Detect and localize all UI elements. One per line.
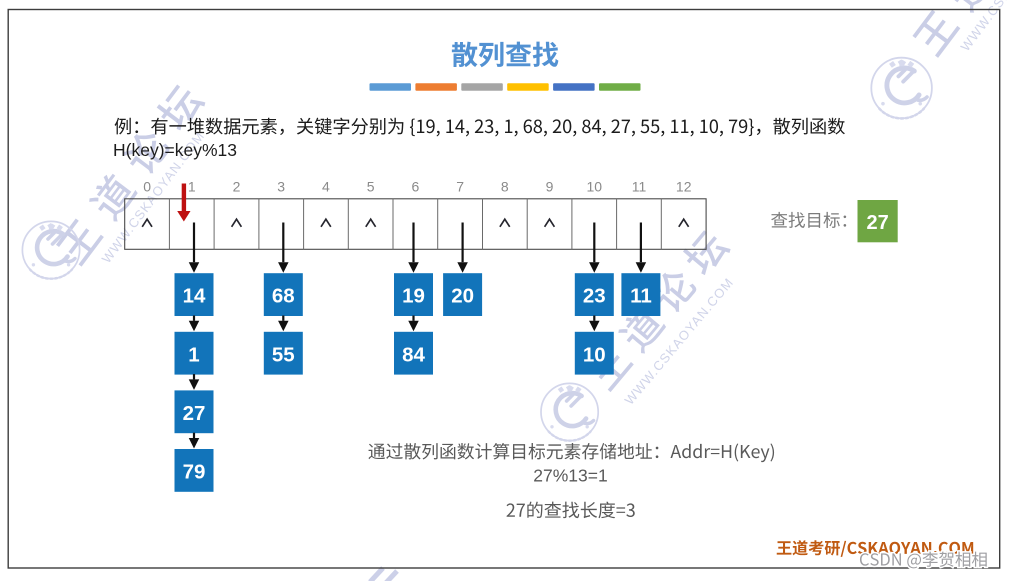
svg-text:11: 11	[630, 285, 652, 308]
svg-text:20: 20	[451, 285, 474, 308]
svg-text:4: 4	[322, 179, 330, 195]
svg-text:1: 1	[188, 343, 199, 366]
svg-text:3: 3	[277, 179, 285, 195]
svg-text:14: 14	[183, 285, 206, 308]
svg-text:12: 12	[676, 179, 692, 195]
svg-text:2: 2	[233, 179, 241, 195]
svg-text:27%13=1: 27%13=1	[533, 466, 607, 486]
svg-text:10: 10	[583, 343, 606, 366]
svg-text:8: 8	[501, 179, 509, 195]
svg-text:WWW.CSKAOYAN.COM: WWW.CSKAOYAN.COM	[958, 0, 1011, 54]
svg-text:9: 9	[546, 179, 554, 195]
svg-text:6: 6	[412, 179, 420, 195]
svg-text:10: 10	[587, 179, 603, 195]
svg-text:19: 19	[402, 285, 425, 308]
svg-text:5: 5	[367, 179, 375, 195]
svg-text:H(key)=key%13: H(key)=key%13	[113, 140, 237, 160]
svg-text:1: 1	[188, 179, 196, 195]
svg-text:7: 7	[456, 179, 464, 195]
svg-text:27: 27	[183, 402, 206, 425]
svg-text:0: 0	[143, 179, 151, 195]
svg-text:68: 68	[272, 285, 295, 308]
svg-text:23: 23	[583, 285, 606, 308]
svg-text:55: 55	[272, 343, 295, 366]
svg-text:11: 11	[632, 179, 647, 195]
svg-text:27: 27	[866, 212, 888, 234]
svg-text:84: 84	[402, 343, 425, 366]
svg-text:79: 79	[183, 461, 206, 484]
